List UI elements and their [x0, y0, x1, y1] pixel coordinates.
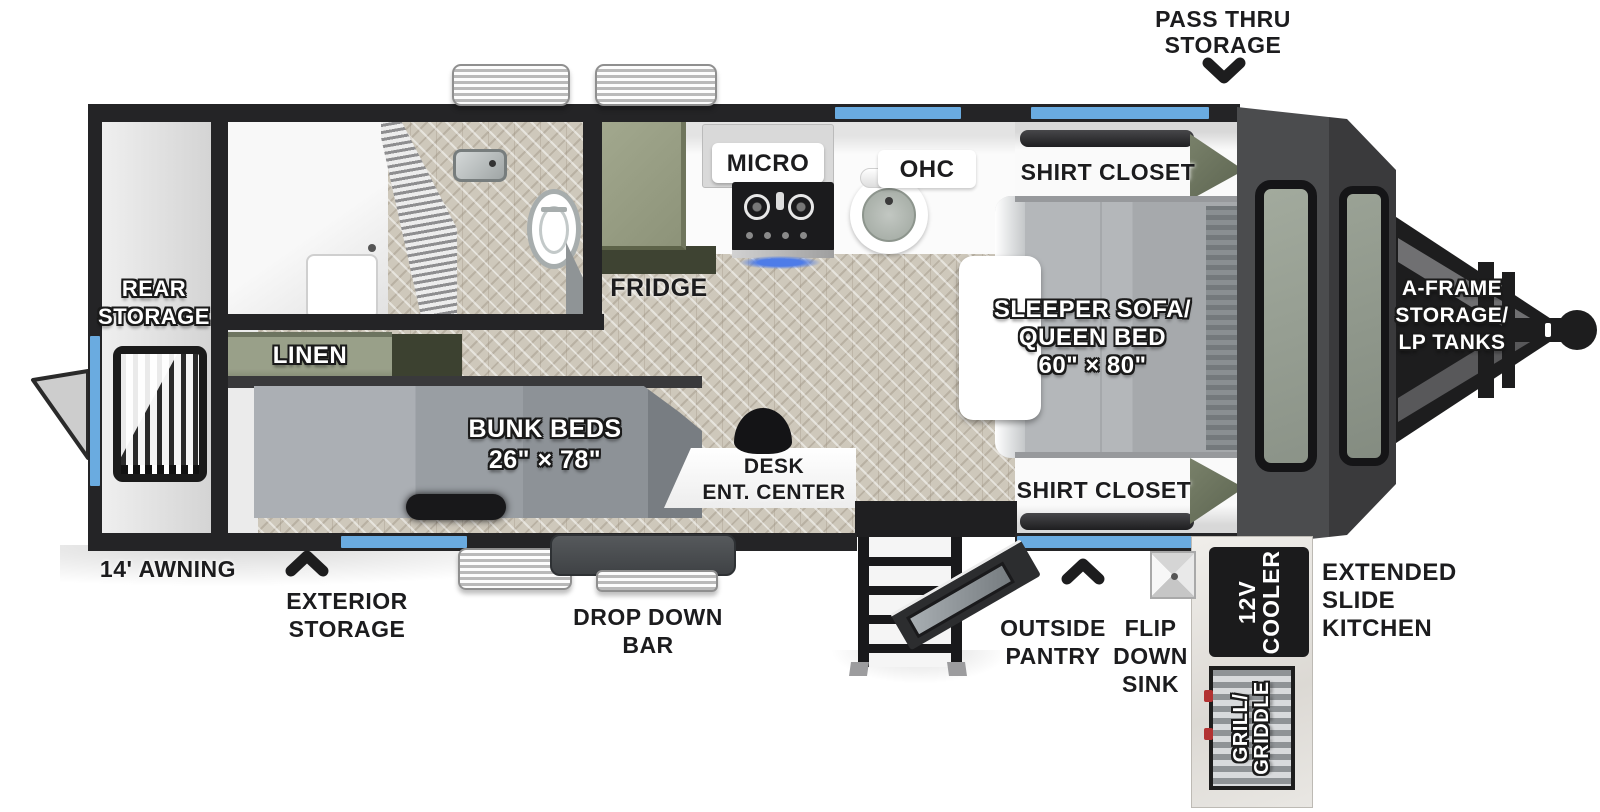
cooktop-knob-2 — [764, 232, 771, 239]
bunk-underslot — [406, 494, 506, 520]
chevron-up-exterior-storage-icon — [284, 548, 330, 578]
cooler-label-line1: 12V — [1235, 549, 1259, 655]
chevron-up-outside-pantry-icon — [1060, 556, 1106, 586]
chevron-down-icon — [1201, 56, 1247, 86]
exterior-storage-label-1: EXTERIOR — [267, 588, 427, 615]
roof-vent-2 — [595, 64, 717, 106]
window-top-1 — [835, 107, 961, 119]
aframe-label-1: A-FRAME — [1372, 277, 1532, 301]
hitch-jack-mark — [1545, 323, 1551, 337]
toilet-bowl-ring — [539, 206, 569, 254]
rear-storage-label-2: STORAGE — [94, 304, 214, 330]
bunk-label-1: BUNK BEDS — [395, 415, 695, 444]
flip-sink-drain-dot — [1171, 573, 1178, 580]
toilet-seat-hinge — [541, 207, 567, 212]
burner-left — [744, 194, 770, 220]
cooler-label: 12V COOLER — [1235, 549, 1283, 655]
cooler-label-line2: COOLER — [1259, 549, 1283, 655]
fridge-base — [594, 246, 716, 274]
bed-edge-bottom — [1015, 452, 1245, 458]
grill-knob-1 — [1204, 690, 1213, 702]
exterior-storage-label-2: STORAGE — [267, 616, 427, 643]
cap-window-left — [1255, 180, 1317, 472]
linen-cabinet-dark — [392, 334, 462, 380]
rear-ramp-door — [113, 346, 207, 482]
fridge-label: FRIDGE — [594, 274, 724, 303]
drop-down-label-2: BAR — [558, 632, 738, 659]
wall-bath-bottom — [228, 314, 604, 330]
flip-sink-label-2: DOWN — [1103, 643, 1198, 670]
fridge — [594, 118, 686, 250]
roof-vent-1 — [452, 64, 570, 106]
flip-down-sink-icon — [1150, 551, 1196, 599]
cooktop-blue-glow — [740, 256, 820, 269]
micro-label: MICRO — [712, 150, 824, 178]
aframe-label-2: STORAGE/ — [1372, 304, 1532, 328]
rear-ramp-flap — [33, 371, 88, 458]
sleeper-label-1: SLEEPER SOFA/ — [970, 296, 1215, 324]
step-foot-right — [947, 662, 967, 676]
flip-sink-label-3: SINK — [1103, 671, 1198, 698]
closet-rod-bottom — [1020, 513, 1194, 530]
entry-threshold — [855, 501, 1017, 537]
grill-griddle: GRILL/ GRIDDLE — [1209, 666, 1295, 790]
grill-label: GRILL/ GRIDDLE — [1231, 668, 1273, 788]
bed-edge-top — [1015, 196, 1245, 202]
cooler-12v: 12V COOLER — [1209, 547, 1309, 657]
awning-arm-pad-2 — [596, 570, 718, 592]
cooktop-knob-4 — [800, 232, 807, 239]
extended-slide-label-3: KITCHEN — [1322, 615, 1502, 643]
rear-ramp-wedge — [121, 354, 199, 474]
step-foot-left — [849, 662, 869, 676]
desk-label-1: DESK — [684, 455, 864, 479]
hitch-coupler — [1557, 310, 1597, 350]
desk-label-2: ENT. CENTER — [684, 481, 864, 505]
ohc-label: OHC — [878, 156, 976, 184]
kitchen-faucet-dot — [885, 197, 893, 205]
window-left — [90, 336, 100, 486]
bunk-label-2: 26" × 78" — [395, 446, 695, 475]
cooktop-center-slot — [776, 192, 784, 210]
burner-right — [788, 194, 814, 220]
sleeper-label-3: 60" × 80" — [970, 352, 1215, 380]
linen-label: LINEN — [240, 342, 380, 370]
shirt-closet-top-label: SHIRT CLOSET — [1008, 159, 1208, 186]
cooktop-knob-1 — [746, 232, 753, 239]
window-bottom-2 — [1017, 536, 1209, 548]
rear-ramp-tread — [121, 465, 199, 474]
bathroom-faucet-dot — [489, 160, 496, 167]
closet-rod-top — [1020, 130, 1194, 147]
grill-knob-2 — [1204, 728, 1213, 740]
rear-storage-label-1: REAR — [94, 276, 214, 302]
shower-pan — [306, 254, 378, 320]
pass-thru-label-2: STORAGE — [1118, 32, 1328, 59]
grill-label-line2: GRIDDLE — [1252, 668, 1273, 788]
window-bottom-1 — [341, 536, 467, 548]
shower-door-handle — [368, 244, 376, 252]
window-top-2 — [1031, 107, 1209, 119]
floorplan-canvas: 12V COOLER GRILL/ GRIDDLE PASS THRU STOR… — [0, 0, 1600, 812]
sleeper-label-2: QUEEN BED — [970, 324, 1215, 352]
extended-slide-label-2: SLIDE — [1322, 587, 1502, 615]
awning-label: 14' AWNING — [88, 556, 248, 583]
bathroom-sink — [453, 149, 507, 182]
flip-sink-label-1: FLIP — [1103, 615, 1198, 642]
cooktop-knob-3 — [782, 232, 789, 239]
grill-label-line1: GRILL/ — [1231, 668, 1252, 788]
aframe-label-3: LP TANKS — [1372, 331, 1532, 355]
drop-down-label-1: DROP DOWN — [558, 604, 738, 631]
shirt-closet-bottom-label: SHIRT CLOSET — [1004, 477, 1204, 504]
cooktop — [732, 182, 834, 252]
extended-slide-label-1: EXTENDED — [1322, 559, 1502, 587]
pass-thru-label-1: PASS THRU — [1118, 6, 1328, 33]
